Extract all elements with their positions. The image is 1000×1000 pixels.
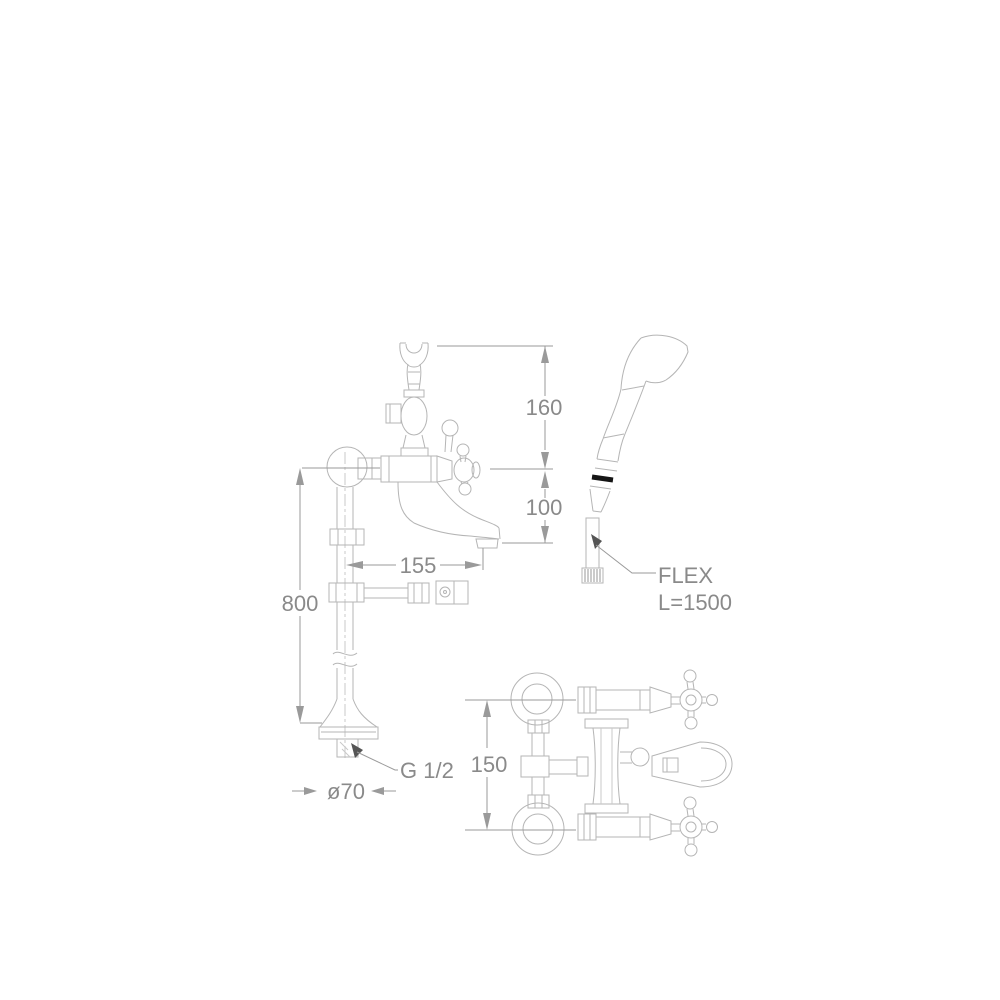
bath-mixer-drawing: 160 100 800 155 G 1/2 ø70: [0, 0, 1000, 1000]
wall-tab: [386, 404, 401, 423]
dimension-800: 800: [282, 468, 380, 723]
bottom-valve-branch: [578, 797, 718, 856]
dim-label-150: 150: [471, 752, 508, 777]
dim-label-160: 160: [526, 395, 563, 420]
thread-size-label: G 1/2: [400, 758, 454, 783]
dim-label-800: 800: [282, 591, 319, 616]
central-body: [585, 719, 649, 813]
dimension-dia70: ø70: [292, 779, 396, 804]
base-diameter-label: ø70: [327, 779, 365, 804]
aerator: [476, 539, 498, 548]
diverter-lever: [442, 420, 458, 452]
flex-length-label: L=1500: [658, 590, 732, 615]
flex-label: FLEX: [658, 563, 713, 588]
lever-plan: [652, 742, 732, 787]
dimension-160-100: 160 100: [437, 346, 562, 543]
dim-label-100: 100: [526, 495, 563, 520]
diverter-knob-plan: [631, 748, 649, 766]
riser-column: [319, 487, 378, 757]
spout: [398, 482, 500, 548]
hand-shower: [582, 335, 688, 583]
label-thread-g12: G 1/2: [351, 743, 454, 783]
valve-body: [327, 447, 452, 487]
bottom-union: [512, 803, 564, 855]
cross-handle: [454, 444, 480, 495]
hose-outlet-branch: [364, 581, 468, 604]
shower-head: [641, 335, 688, 383]
base-plate: [319, 727, 378, 739]
diverter-body: [386, 397, 428, 456]
technical-drawing-page: 160 100 800 155 G 1/2 ø70: [0, 0, 1000, 1000]
dim-label-155: 155: [400, 553, 437, 578]
side-view-mixer: [319, 343, 500, 760]
dimension-155: 155: [346, 548, 483, 578]
top-valve-branch: [578, 670, 718, 729]
top-union: [511, 673, 563, 725]
ball-elbow: [327, 447, 367, 487]
label-flex: FLEX L=1500: [591, 534, 732, 615]
handle-band: [592, 477, 613, 480]
shower-cradle-fork: [400, 343, 428, 397]
top-view-mixer: [511, 670, 732, 856]
union-column: [521, 720, 588, 808]
